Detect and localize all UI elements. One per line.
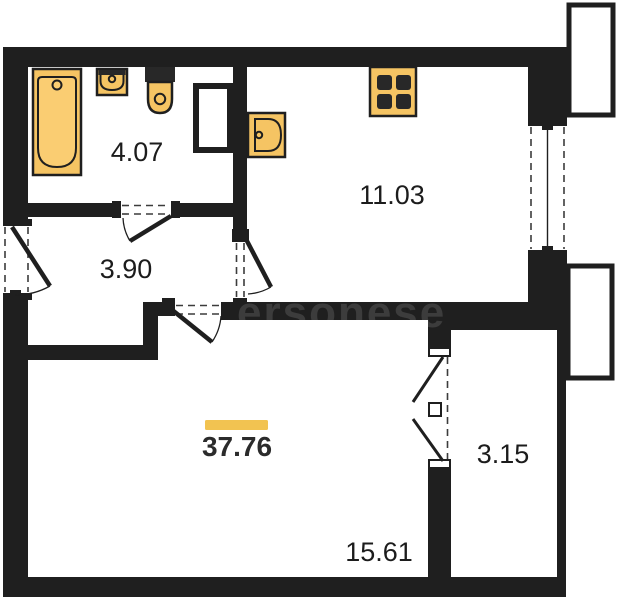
bathroom-area-label: 4.07 bbox=[111, 137, 164, 167]
entrance-door-leaf bbox=[12, 227, 50, 286]
kitchen-door-hinge-block bbox=[232, 229, 249, 242]
balcony-door-sill-bottom bbox=[429, 460, 450, 468]
bathroom-sink-counter bbox=[99, 70, 126, 75]
stove-burner-1 bbox=[377, 75, 392, 90]
kitchen-area-label: 11.03 bbox=[359, 180, 425, 210]
stove-fixture bbox=[370, 67, 416, 116]
wall-loggia-right bbox=[557, 330, 566, 577]
entry-tick bbox=[10, 290, 21, 295]
window-stop-top bbox=[542, 120, 553, 130]
balcony-middle-right bbox=[568, 266, 612, 378]
kitchen-window bbox=[531, 120, 564, 256]
wall-lower-left bbox=[28, 345, 158, 360]
wall-top bbox=[3, 47, 530, 67]
balcony-door-handle bbox=[429, 403, 441, 416]
wall-left-lower bbox=[3, 300, 28, 577]
floor-plan: ersonese bbox=[0, 0, 617, 600]
stove-burner-3 bbox=[377, 94, 392, 109]
balcony-door-sill-top bbox=[429, 348, 450, 356]
wall-ne-chunk bbox=[528, 47, 567, 118]
living-room-door bbox=[171, 306, 221, 343]
balcony-door-leaf-lower bbox=[413, 419, 443, 461]
watermark-text: ersonese bbox=[237, 288, 446, 337]
bathroom-door bbox=[122, 206, 171, 242]
wall-bath-bottom-a bbox=[28, 203, 113, 217]
balcony-top-right bbox=[569, 5, 613, 115]
total-area-bar bbox=[205, 420, 268, 430]
bath-door-jamb-right bbox=[171, 201, 180, 218]
stove-burner-2 bbox=[396, 75, 411, 90]
room-labels: 4.07 11.03 3.90 15.61 3.15 37.76 bbox=[100, 137, 530, 567]
kitchen-sink-fixture bbox=[248, 113, 285, 157]
bathroom-door-arc bbox=[123, 218, 130, 241]
hallway-area-label: 3.90 bbox=[100, 254, 153, 284]
living-door-arc bbox=[212, 316, 221, 342]
entrance-door bbox=[5, 227, 50, 295]
living-room-area-label: 15.61 bbox=[345, 537, 413, 567]
wall-loggia-left bbox=[428, 469, 451, 577]
wall-bottom bbox=[3, 577, 566, 597]
kitchen-door-leaf bbox=[247, 241, 271, 287]
loggia-area-label: 3.15 bbox=[477, 439, 530, 469]
bathroom-sink-fixture bbox=[97, 69, 127, 95]
bath-door-jamb-left bbox=[112, 201, 121, 218]
wall-se-chunk bbox=[528, 252, 567, 330]
floor-plan-svg: ersonese bbox=[0, 0, 617, 600]
balcony-door bbox=[413, 348, 450, 468]
bathtub-fixture bbox=[33, 69, 81, 175]
bathroom-door-leaf bbox=[130, 216, 171, 241]
toilet-fixture bbox=[145, 67, 175, 113]
wall-core-upper bbox=[233, 47, 247, 230]
shaft-niche bbox=[196, 86, 230, 150]
toilet-bowl bbox=[148, 82, 172, 113]
wall-left-upper bbox=[3, 47, 28, 219]
entry-sill-top bbox=[3, 219, 32, 226]
window-stop-bottom bbox=[542, 246, 553, 256]
toilet-tank bbox=[145, 67, 175, 82]
balcony-door-leaf-upper bbox=[413, 357, 443, 402]
stove-burner-4 bbox=[396, 94, 411, 109]
total-area-label: 37.76 bbox=[202, 431, 272, 462]
wall-bath-bottom-b bbox=[180, 203, 233, 217]
